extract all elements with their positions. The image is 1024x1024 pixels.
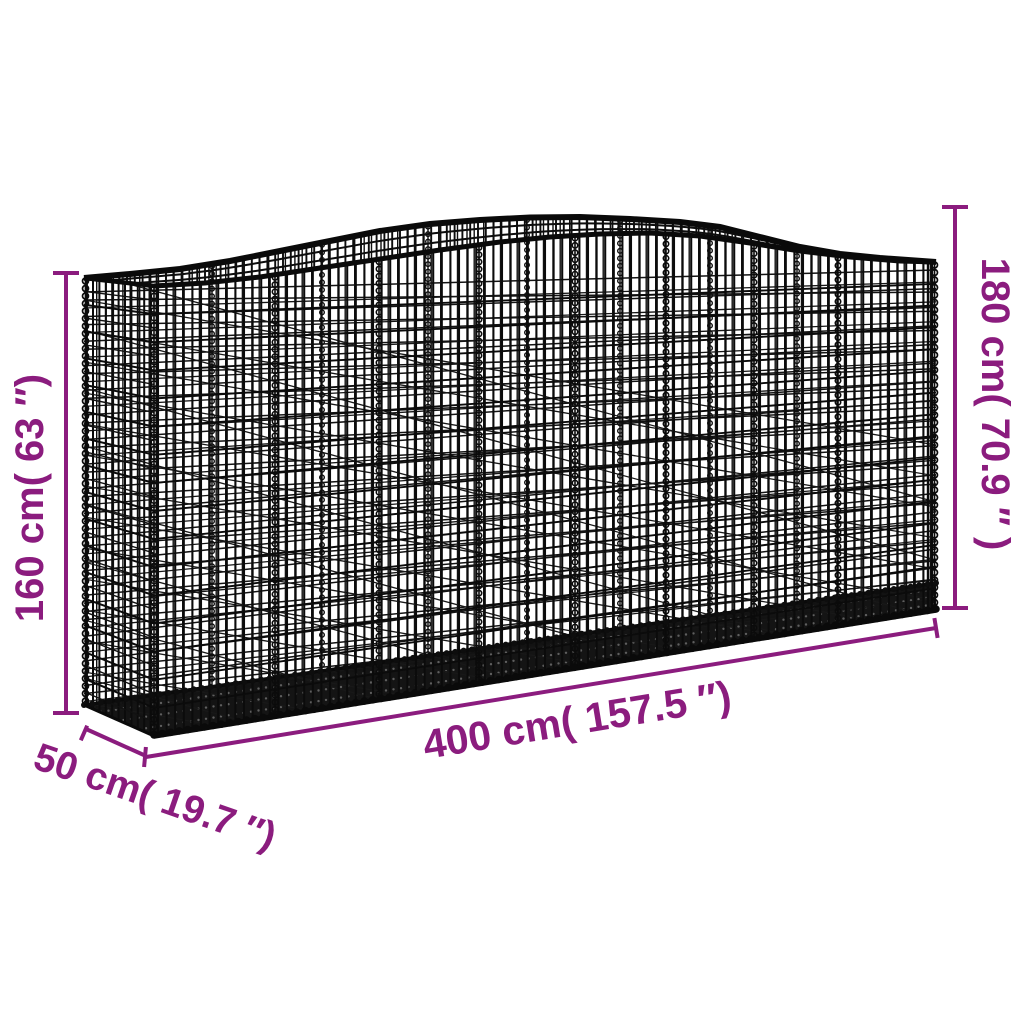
svg-text:180 cm( 70.9 ″ ): 180 cm( 70.9 ″ )	[973, 258, 1017, 551]
svg-text:160 cm( 63 ″): 160 cm( 63 ″)	[8, 374, 52, 622]
